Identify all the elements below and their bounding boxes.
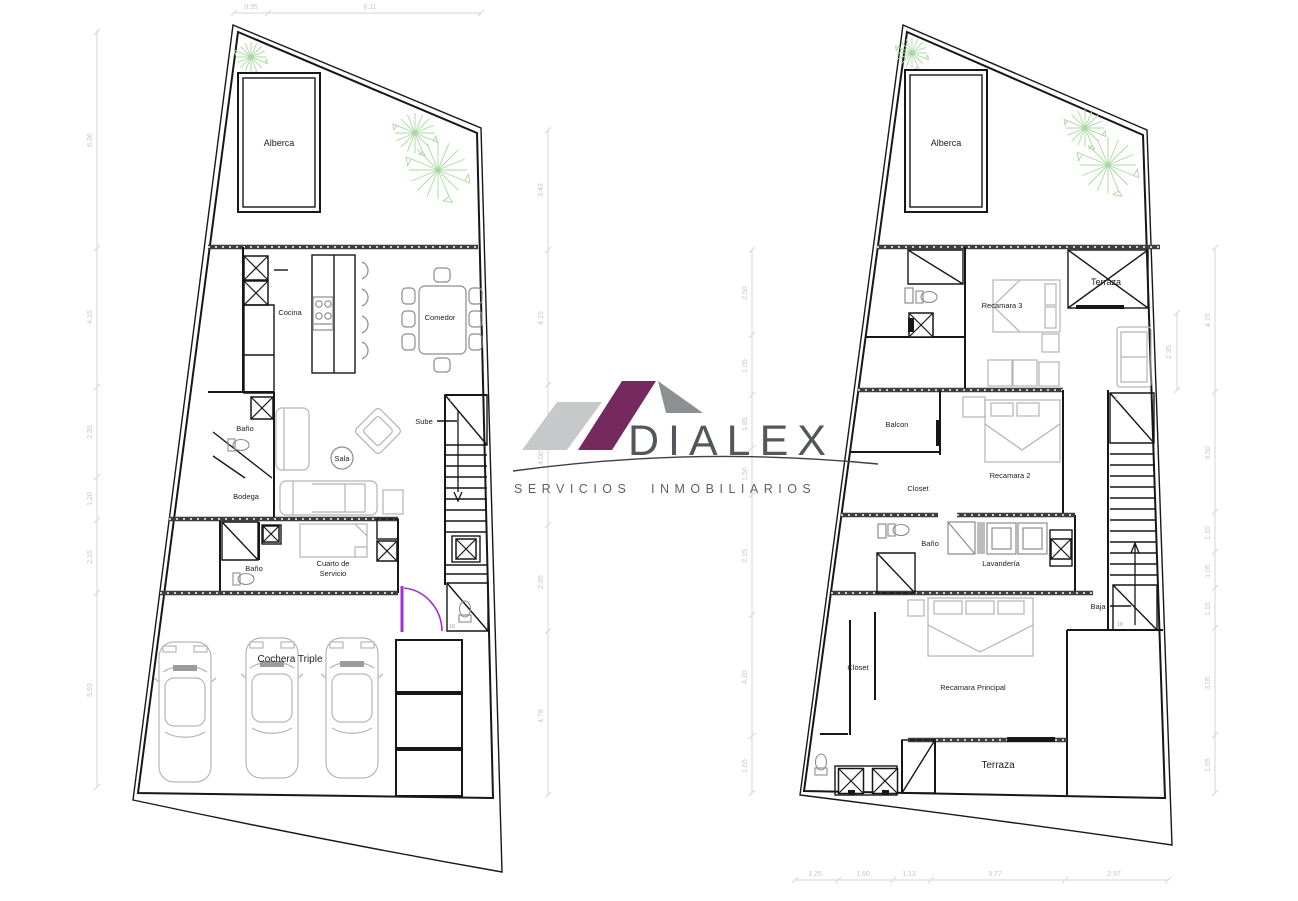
logo-tagline-word1: SERVICIOS: [514, 482, 631, 496]
upper-bath-bottom: [815, 740, 935, 795]
plan-drawing: 0.95 6.11 6.36 4.15 2.35 1.20 2.15 5.93 …: [0, 0, 1298, 901]
dialex-logo: DIALEX SERVICIOS INMOBILIARIOS: [513, 381, 878, 496]
shaft-icon: [251, 397, 273, 419]
pantry-icon: [244, 281, 268, 305]
dim-label: 3.05: [1205, 676, 1212, 690]
dim-label: 2.85: [538, 575, 545, 589]
bedroom3: Recamara 3: [982, 280, 1060, 352]
upper-bath-top: [905, 250, 963, 337]
dim-labels-bottom: 1.25 1.60 1.13 3.77 2.97: [808, 871, 1121, 878]
shaft-icon: [263, 526, 279, 542]
balcony-jamb: [936, 420, 941, 446]
room-label-bath: Baño: [921, 539, 939, 548]
room-label-closet1: Closet: [907, 484, 929, 493]
dim-label: 2.15: [87, 550, 94, 564]
room-label-closet2: Closet: [847, 663, 869, 672]
dim-label: 3.50: [1205, 446, 1212, 460]
service-room: Baño Cuarto de Servicio: [222, 519, 398, 585]
garage-storage: [396, 640, 462, 796]
dim-label: 0.95: [244, 4, 258, 11]
room-label-bodega: Bodega: [233, 492, 260, 501]
stove-icon: [313, 297, 333, 330]
stairs-up: 1 18 Sube: [415, 395, 488, 631]
dim-label: 2.50: [742, 286, 749, 300]
room-label-service: Servicio: [320, 569, 347, 578]
dim-label: 3.77: [988, 871, 1002, 878]
room-label-bedroom2: Recamara 2: [990, 471, 1031, 480]
dim-label: 1.25: [808, 871, 822, 878]
logo-tagline-word2: INMOBILIARIOS: [651, 482, 816, 496]
room-label-master: Recamara Principal: [940, 683, 1006, 692]
room-label-kitchen: Cocina: [278, 308, 302, 317]
lot-boundary: [133, 25, 502, 872]
dim-label: 5.93: [87, 683, 94, 697]
room-label-bedroom3: Recamara 3: [982, 301, 1023, 310]
car-icon: [154, 642, 216, 782]
dim-label: 1.05: [1205, 564, 1212, 578]
toilet-icon: [233, 573, 254, 585]
dim-label: 2.15: [742, 549, 749, 563]
dim-labels-right-plan-left: 2.50 1.05 1.85 1.50 2.15 4.20 1.65: [742, 286, 749, 773]
dim-labels-left: 6.36 4.15 2.35 1.20 2.15 5.93: [87, 133, 94, 697]
dim-label: 2.97: [1107, 871, 1121, 878]
kitchen: Cocina: [244, 255, 368, 393]
dim-labels-far-right: 4.15 3.50 1.10 1.05 1.15 3.05 1.65: [1205, 313, 1212, 772]
dim-label: 1.05: [742, 359, 749, 373]
dining-set: Comedor: [402, 268, 482, 372]
dim-label: 1.65: [1205, 758, 1212, 772]
room-label-sala: Sala: [334, 454, 350, 463]
shaft-icon: [1051, 539, 1071, 559]
stair-step-number: 1: [1115, 396, 1118, 402]
dim-label: 2.35: [1166, 345, 1173, 359]
room-label-sube: Sube: [415, 417, 433, 426]
car-icon: [321, 638, 383, 778]
room-label-pool: Alberca: [931, 138, 962, 148]
dim-label: 6.36: [87, 133, 94, 147]
living-room: Sala: [276, 407, 403, 515]
dim-label: 1.65: [742, 759, 749, 773]
dim-label: 1.15: [1205, 602, 1212, 616]
dim-label: 4.78: [538, 709, 545, 723]
pool: Alberca: [238, 73, 320, 212]
room-label-garage: Cochera Triple: [257, 654, 322, 665]
tree-icon: [1077, 137, 1139, 196]
interior-walls-ground: [160, 247, 487, 593]
toilet-icon: [888, 524, 909, 536]
dim-label: 1.13: [902, 871, 916, 878]
tree-icon: [393, 113, 437, 155]
stair-step-number: 18: [1117, 622, 1123, 628]
master-bedroom: Recamara Principal: [908, 598, 1033, 692]
dim-label: 1.50: [742, 467, 749, 481]
window-seat: [1117, 327, 1151, 387]
shaft-icon: [873, 769, 898, 794]
logo-roof-right: [658, 381, 703, 413]
dim-labels-mid: 3.43 4.15 4.00 2.85 4.78: [538, 183, 545, 723]
shaft-icon: [377, 541, 397, 561]
room-label-balcony: Balcon: [886, 420, 909, 429]
room-label-laundry: Lavandería: [982, 559, 1020, 568]
room-label-pool: Alberca: [264, 138, 295, 148]
room-label-terrace-top: Terraza: [1091, 277, 1121, 287]
shaft-icon: [456, 539, 476, 559]
shaft-icon: [839, 769, 864, 794]
room-label-dining: Comedor: [425, 313, 456, 322]
toilet-icon: [815, 754, 827, 775]
upper-bath-mid: Baño: [877, 524, 939, 593]
dim-label: 6.11: [363, 4, 376, 11]
tree-icon: [406, 141, 470, 202]
terrace-top: Terraza: [1068, 250, 1148, 309]
entry-door: [402, 586, 442, 632]
laundry: Lavandería: [948, 522, 1072, 568]
floor-plan-sheet: 0.95 6.11 6.36 4.15 2.35 1.20 2.15 5.93 …: [0, 0, 1298, 901]
room-label-bath2: Baño: [245, 564, 263, 573]
stair-step-number: 1: [449, 398, 452, 404]
garage: Cochera Triple: [154, 638, 462, 796]
tree-icon: [235, 42, 268, 74]
room-label-bath1: Baño: [236, 424, 254, 433]
terrace-door-sill: [1007, 737, 1055, 742]
pool-upper: Alberca: [905, 70, 987, 212]
dim-label: 4.15: [1205, 313, 1212, 327]
floor-plan-ground: Alberca: [133, 25, 502, 872]
interior-walls-upper: [820, 247, 1163, 795]
dim-label: 4.15: [87, 310, 94, 324]
dim-label: 2.35: [87, 425, 94, 439]
dim-label: 3.43: [538, 183, 545, 197]
dim-label: 1.60: [856, 871, 870, 878]
dim-label: 4.00: [538, 451, 545, 465]
dim-label: 4.20: [742, 670, 749, 684]
room-label-terrace-bottom: Terraza: [981, 760, 1015, 771]
room-label-service: Cuarto de: [317, 559, 350, 568]
bar-stools: [362, 262, 368, 359]
dim-label: 1.10: [1205, 526, 1212, 540]
room-label-baja: Baja: [1090, 602, 1106, 611]
floor-plan-upper: Alberca: [800, 25, 1172, 845]
dim-label: 1.20: [87, 492, 94, 506]
stairs-down: 1 18 Baja: [1090, 393, 1157, 630]
dim-label: 4.15: [538, 311, 545, 325]
toilet-icon: [916, 291, 937, 303]
bedroom2: Recamara 2: [963, 360, 1060, 480]
bath1: Baño: [228, 397, 273, 451]
toilet-icon: [228, 439, 249, 451]
fridge-icon: [244, 256, 268, 280]
stair-step-number: 18: [449, 624, 455, 630]
